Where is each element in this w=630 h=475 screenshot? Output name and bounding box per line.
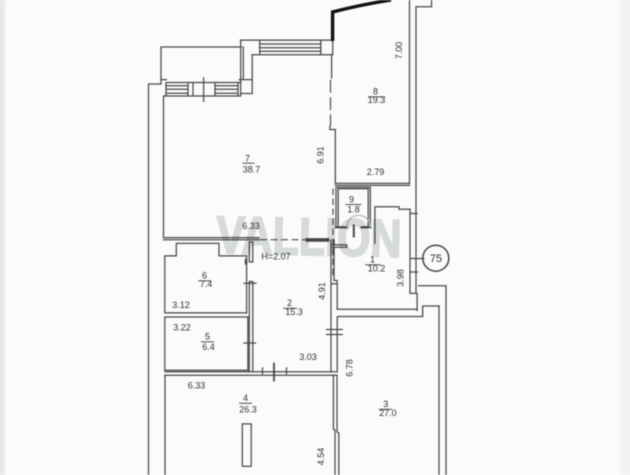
svg-text:3.98: 3.98	[395, 269, 405, 287]
svg-text:3.22: 3.22	[173, 323, 191, 333]
svg-text:38.7: 38.7	[243, 165, 261, 175]
svg-text:9: 9	[349, 194, 354, 204]
svg-text:6.33: 6.33	[188, 381, 206, 391]
svg-text:4: 4	[243, 393, 248, 403]
svg-text:6.78: 6.78	[344, 359, 354, 377]
svg-text:75: 75	[430, 253, 442, 265]
svg-text:5: 5	[205, 332, 210, 342]
svg-text:2.79: 2.79	[367, 167, 385, 177]
svg-text:4.91: 4.91	[317, 282, 327, 300]
svg-text:6.4: 6.4	[202, 342, 215, 352]
svg-text:4.54: 4.54	[316, 448, 326, 466]
svg-text:7: 7	[245, 154, 250, 164]
svg-text:6.91: 6.91	[316, 146, 326, 164]
svg-text:7.00: 7.00	[394, 42, 404, 60]
svg-text:3.03: 3.03	[299, 352, 317, 362]
svg-text:3.12: 3.12	[172, 300, 190, 310]
svg-text:VALLION: VALLION	[216, 206, 402, 269]
svg-text:26.3: 26.3	[239, 405, 257, 415]
